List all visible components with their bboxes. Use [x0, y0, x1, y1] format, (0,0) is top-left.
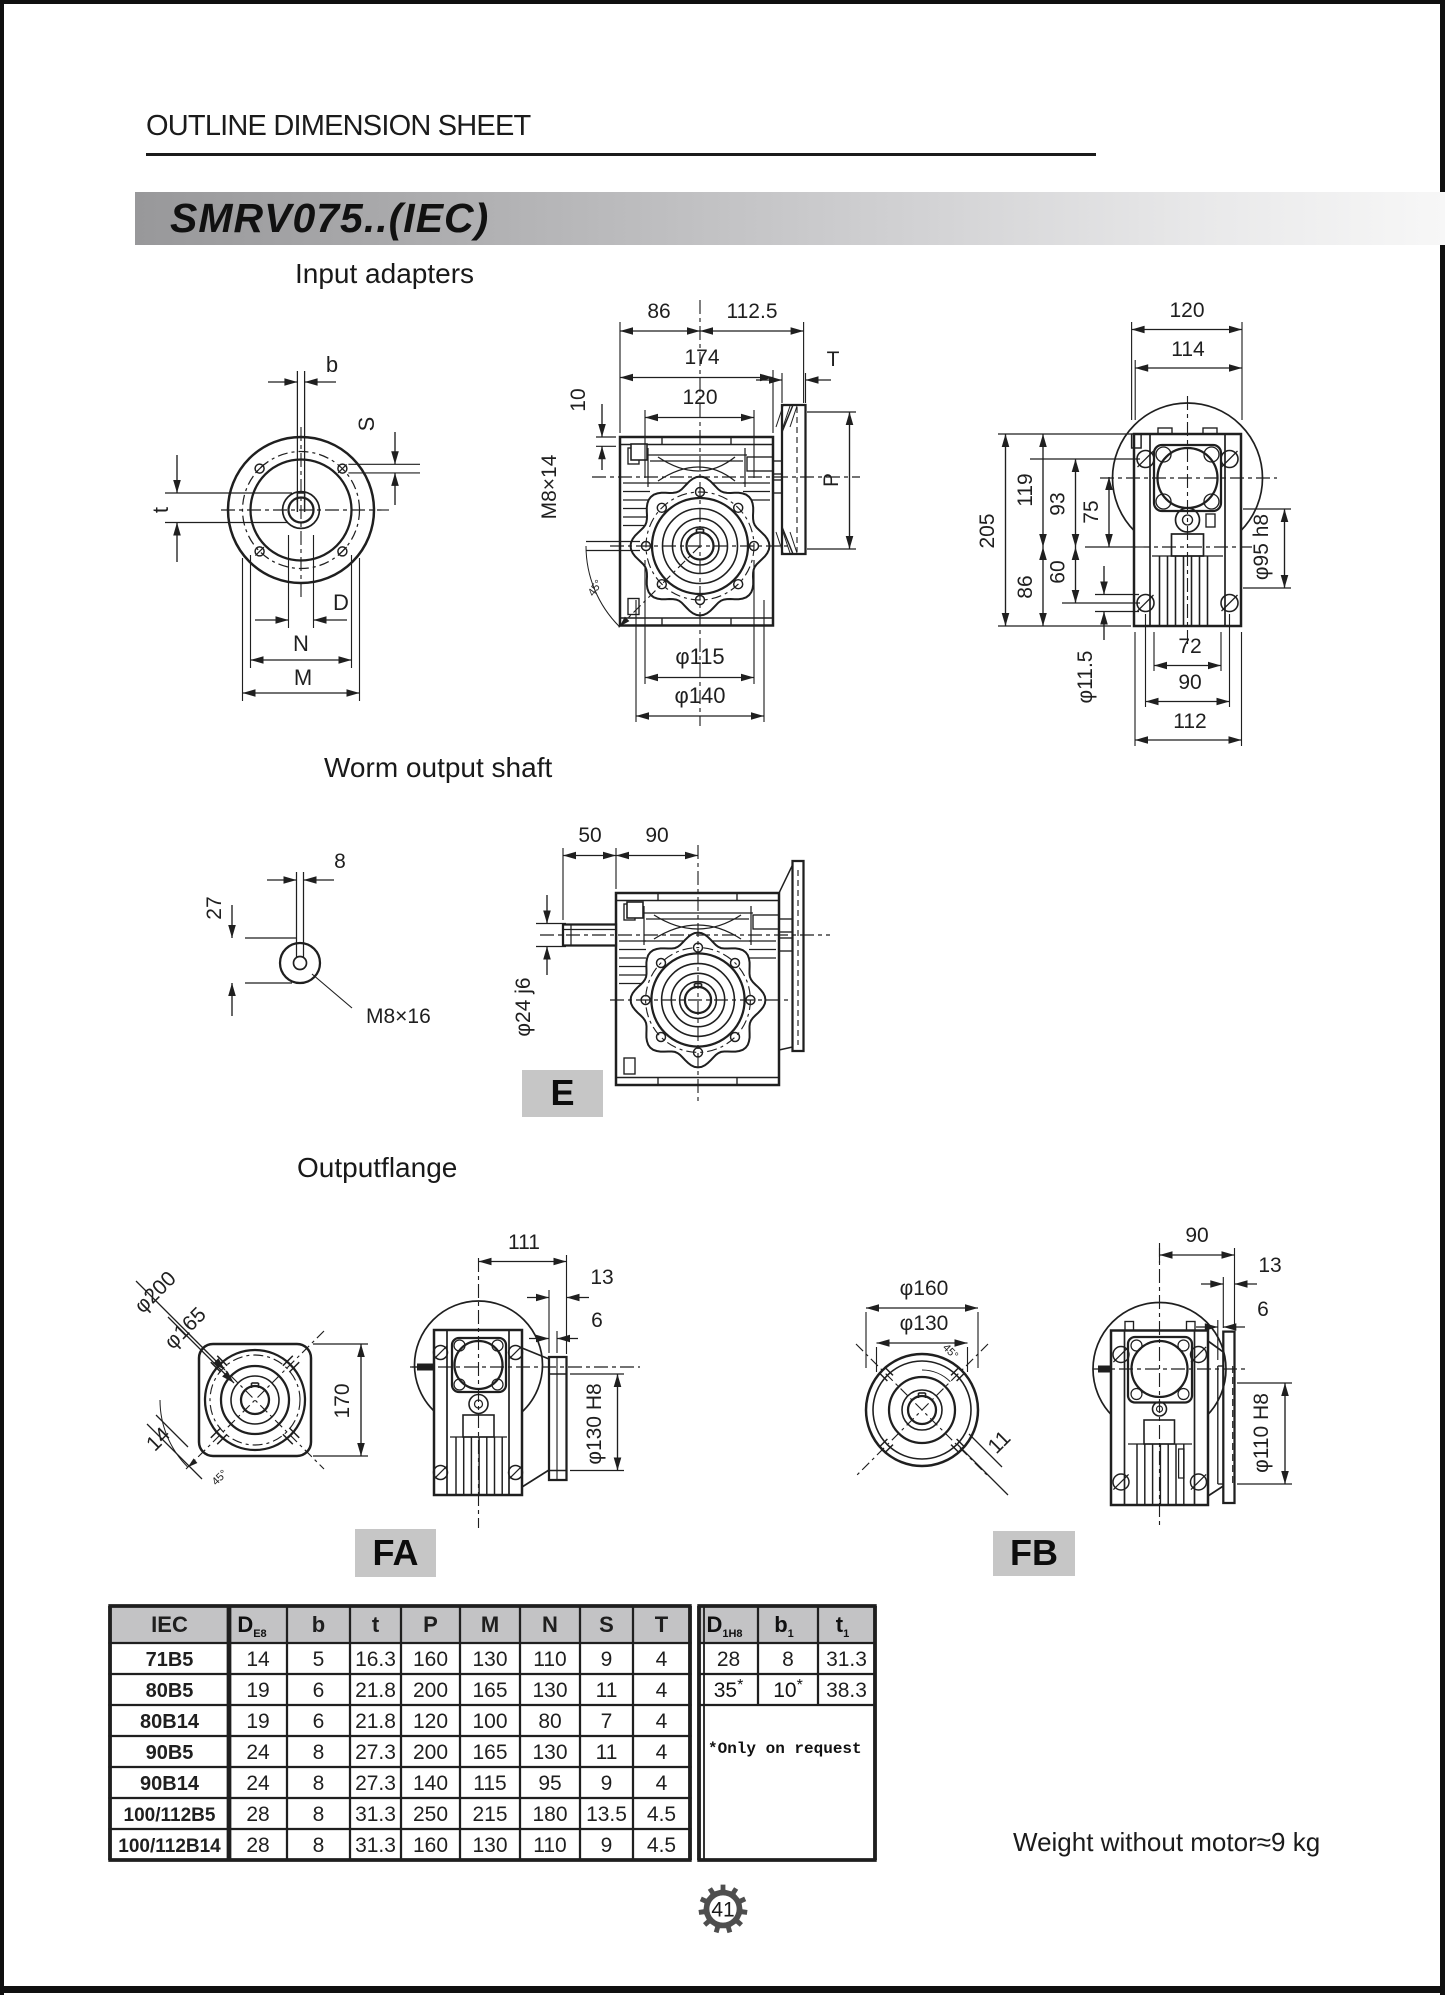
svg-text:φ130: φ130	[900, 1312, 949, 1335]
svg-text:160: 160	[413, 1834, 448, 1857]
svg-text:*Only on request: *Only on request	[708, 1740, 862, 1758]
svg-text:165: 165	[472, 1679, 507, 1702]
svg-text:75: 75	[1080, 500, 1103, 523]
svg-text:110: 110	[533, 1648, 566, 1671]
svg-text:T: T	[655, 1612, 669, 1637]
svg-text:28: 28	[717, 1648, 740, 1671]
svg-text:45°: 45°	[210, 1468, 230, 1488]
svg-text:90: 90	[1178, 671, 1201, 694]
svg-text:24: 24	[246, 1741, 270, 1764]
svg-text:180: 180	[532, 1803, 567, 1826]
svg-text:6: 6	[1257, 1298, 1269, 1321]
svg-text:t: t	[148, 507, 173, 513]
svg-text:27.3: 27.3	[355, 1741, 396, 1764]
svg-text:38.3: 38.3	[826, 1679, 867, 1702]
svg-text:D: D	[333, 590, 349, 615]
svg-text:170: 170	[331, 1383, 354, 1418]
svg-text:112.5: 112.5	[727, 300, 778, 323]
svg-text:8: 8	[782, 1648, 794, 1671]
svg-text:4: 4	[656, 1772, 668, 1795]
svg-text:13.5: 13.5	[586, 1803, 627, 1826]
svg-text:7: 7	[601, 1710, 613, 1733]
svg-text:φ110 H8: φ110 H8	[1250, 1393, 1273, 1473]
svg-text:80B14: 80B14	[140, 1711, 200, 1733]
svg-text:140: 140	[413, 1772, 448, 1795]
svg-text:φ140: φ140	[675, 683, 726, 708]
svg-text:11: 11	[596, 1741, 618, 1764]
svg-text:31.3: 31.3	[355, 1834, 396, 1857]
svg-text:8: 8	[313, 1803, 325, 1826]
svg-text:b: b	[312, 1612, 325, 1637]
svg-text:T: T	[827, 348, 840, 371]
svg-text:35*: 35*	[714, 1677, 744, 1702]
svg-text:t: t	[372, 1612, 380, 1637]
svg-text:13: 13	[590, 1266, 613, 1289]
svg-text:114: 114	[1171, 338, 1205, 361]
svg-text:130: 130	[532, 1679, 567, 1702]
svg-text:10: 10	[567, 388, 590, 411]
svg-text:80B5: 80B5	[146, 1680, 194, 1702]
svg-text:160: 160	[413, 1648, 448, 1671]
svg-text:4: 4	[656, 1741, 668, 1764]
svg-text:28: 28	[246, 1834, 269, 1857]
svg-text:93: 93	[1047, 492, 1070, 515]
svg-text:φ115: φ115	[675, 644, 724, 669]
svg-text:19: 19	[246, 1679, 269, 1702]
svg-text:9: 9	[601, 1648, 613, 1671]
svg-text:11: 11	[596, 1679, 618, 1702]
svg-text:27.3: 27.3	[355, 1772, 396, 1795]
svg-text:9: 9	[601, 1772, 613, 1795]
svg-text:200: 200	[413, 1741, 448, 1764]
svg-text:P: P	[423, 1612, 438, 1637]
svg-text:8: 8	[313, 1772, 325, 1795]
svg-text:100/112B14: 100/112B14	[118, 1836, 221, 1857]
svg-text:5: 5	[313, 1648, 325, 1671]
svg-text:M: M	[481, 1612, 499, 1637]
svg-text:215: 215	[472, 1803, 507, 1826]
svg-text:31.3: 31.3	[826, 1648, 867, 1671]
svg-text:S: S	[354, 417, 379, 432]
svg-text:φ11.5: φ11.5	[1074, 651, 1097, 704]
svg-text:120: 120	[1169, 299, 1204, 322]
svg-text:6: 6	[313, 1710, 325, 1733]
svg-text:119: 119	[1014, 473, 1037, 506]
svg-text:M8×14: M8×14	[538, 454, 561, 519]
svg-text:90: 90	[1185, 1224, 1208, 1247]
svg-text:174: 174	[684, 346, 719, 369]
svg-text:72: 72	[1178, 635, 1201, 658]
svg-text:10*: 10*	[773, 1677, 803, 1702]
svg-text:4: 4	[656, 1710, 668, 1733]
svg-text:50: 50	[578, 824, 601, 847]
svg-text:4.5: 4.5	[647, 1803, 676, 1826]
svg-text:115: 115	[473, 1772, 506, 1795]
svg-text:21.8: 21.8	[355, 1710, 396, 1733]
svg-text:S: S	[599, 1612, 614, 1637]
svg-text:120: 120	[413, 1710, 448, 1733]
svg-text:φ130 H8: φ130 H8	[583, 1383, 606, 1464]
svg-text:M: M	[294, 665, 312, 690]
svg-text:4.5: 4.5	[647, 1834, 676, 1857]
svg-text:200: 200	[413, 1679, 448, 1702]
svg-text:φ95 h8: φ95 h8	[1250, 514, 1273, 580]
svg-text:φ200: φ200	[130, 1267, 181, 1318]
svg-text:165: 165	[472, 1741, 507, 1764]
svg-text:130: 130	[472, 1834, 507, 1857]
svg-text:90: 90	[645, 824, 668, 847]
svg-text:9: 9	[601, 1834, 613, 1857]
svg-text:86: 86	[1014, 575, 1037, 598]
svg-text:P: P	[820, 473, 843, 487]
svg-text:205: 205	[976, 513, 999, 548]
svg-text:6: 6	[313, 1679, 325, 1702]
svg-text:100/112B5: 100/112B5	[124, 1805, 216, 1826]
svg-text:φ165: φ165	[160, 1303, 211, 1354]
svg-text:60: 60	[1047, 560, 1070, 583]
svg-text:41: 41	[711, 1899, 734, 1922]
svg-text:b: b	[326, 352, 338, 377]
svg-text:8: 8	[334, 850, 346, 873]
svg-text:24: 24	[246, 1772, 270, 1795]
svg-text:100: 100	[472, 1710, 507, 1733]
svg-text:φ160: φ160	[900, 1277, 949, 1300]
svg-text:28: 28	[246, 1803, 269, 1826]
svg-text:8: 8	[313, 1741, 325, 1764]
svg-text:130: 130	[532, 1741, 567, 1764]
svg-text:90B5: 90B5	[146, 1742, 194, 1764]
svg-text:120: 120	[682, 386, 717, 409]
svg-text:13: 13	[1258, 1254, 1281, 1277]
svg-text:4: 4	[656, 1648, 668, 1671]
svg-text:71B5: 71B5	[146, 1649, 194, 1671]
svg-text:130: 130	[472, 1648, 507, 1671]
svg-text:N: N	[293, 631, 309, 656]
svg-text:95: 95	[538, 1772, 561, 1795]
svg-text:27: 27	[203, 896, 226, 919]
svg-text:14: 14	[246, 1648, 270, 1671]
svg-text:110: 110	[533, 1834, 566, 1857]
svg-text:86: 86	[647, 300, 670, 323]
svg-text:250: 250	[413, 1803, 448, 1826]
svg-text:112: 112	[1173, 710, 1206, 733]
svg-text:M8×16: M8×16	[366, 1005, 431, 1028]
svg-text:80: 80	[538, 1710, 561, 1733]
svg-text:19: 19	[246, 1710, 269, 1733]
svg-text:6: 6	[591, 1309, 603, 1332]
svg-text:N: N	[542, 1612, 558, 1637]
svg-text:16.3: 16.3	[355, 1648, 396, 1671]
svg-text:8: 8	[313, 1834, 325, 1857]
svg-text:4: 4	[656, 1679, 668, 1702]
svg-text:21.8: 21.8	[355, 1679, 396, 1702]
svg-text:φ24 j6: φ24 j6	[512, 977, 535, 1036]
svg-text:14: 14	[142, 1423, 175, 1456]
svg-text:90B14: 90B14	[140, 1773, 200, 1795]
svg-text:45°: 45°	[586, 578, 605, 599]
svg-text:111: 111	[508, 1231, 540, 1254]
svg-text:IEC: IEC	[151, 1612, 188, 1637]
svg-text:31.3: 31.3	[355, 1803, 396, 1826]
